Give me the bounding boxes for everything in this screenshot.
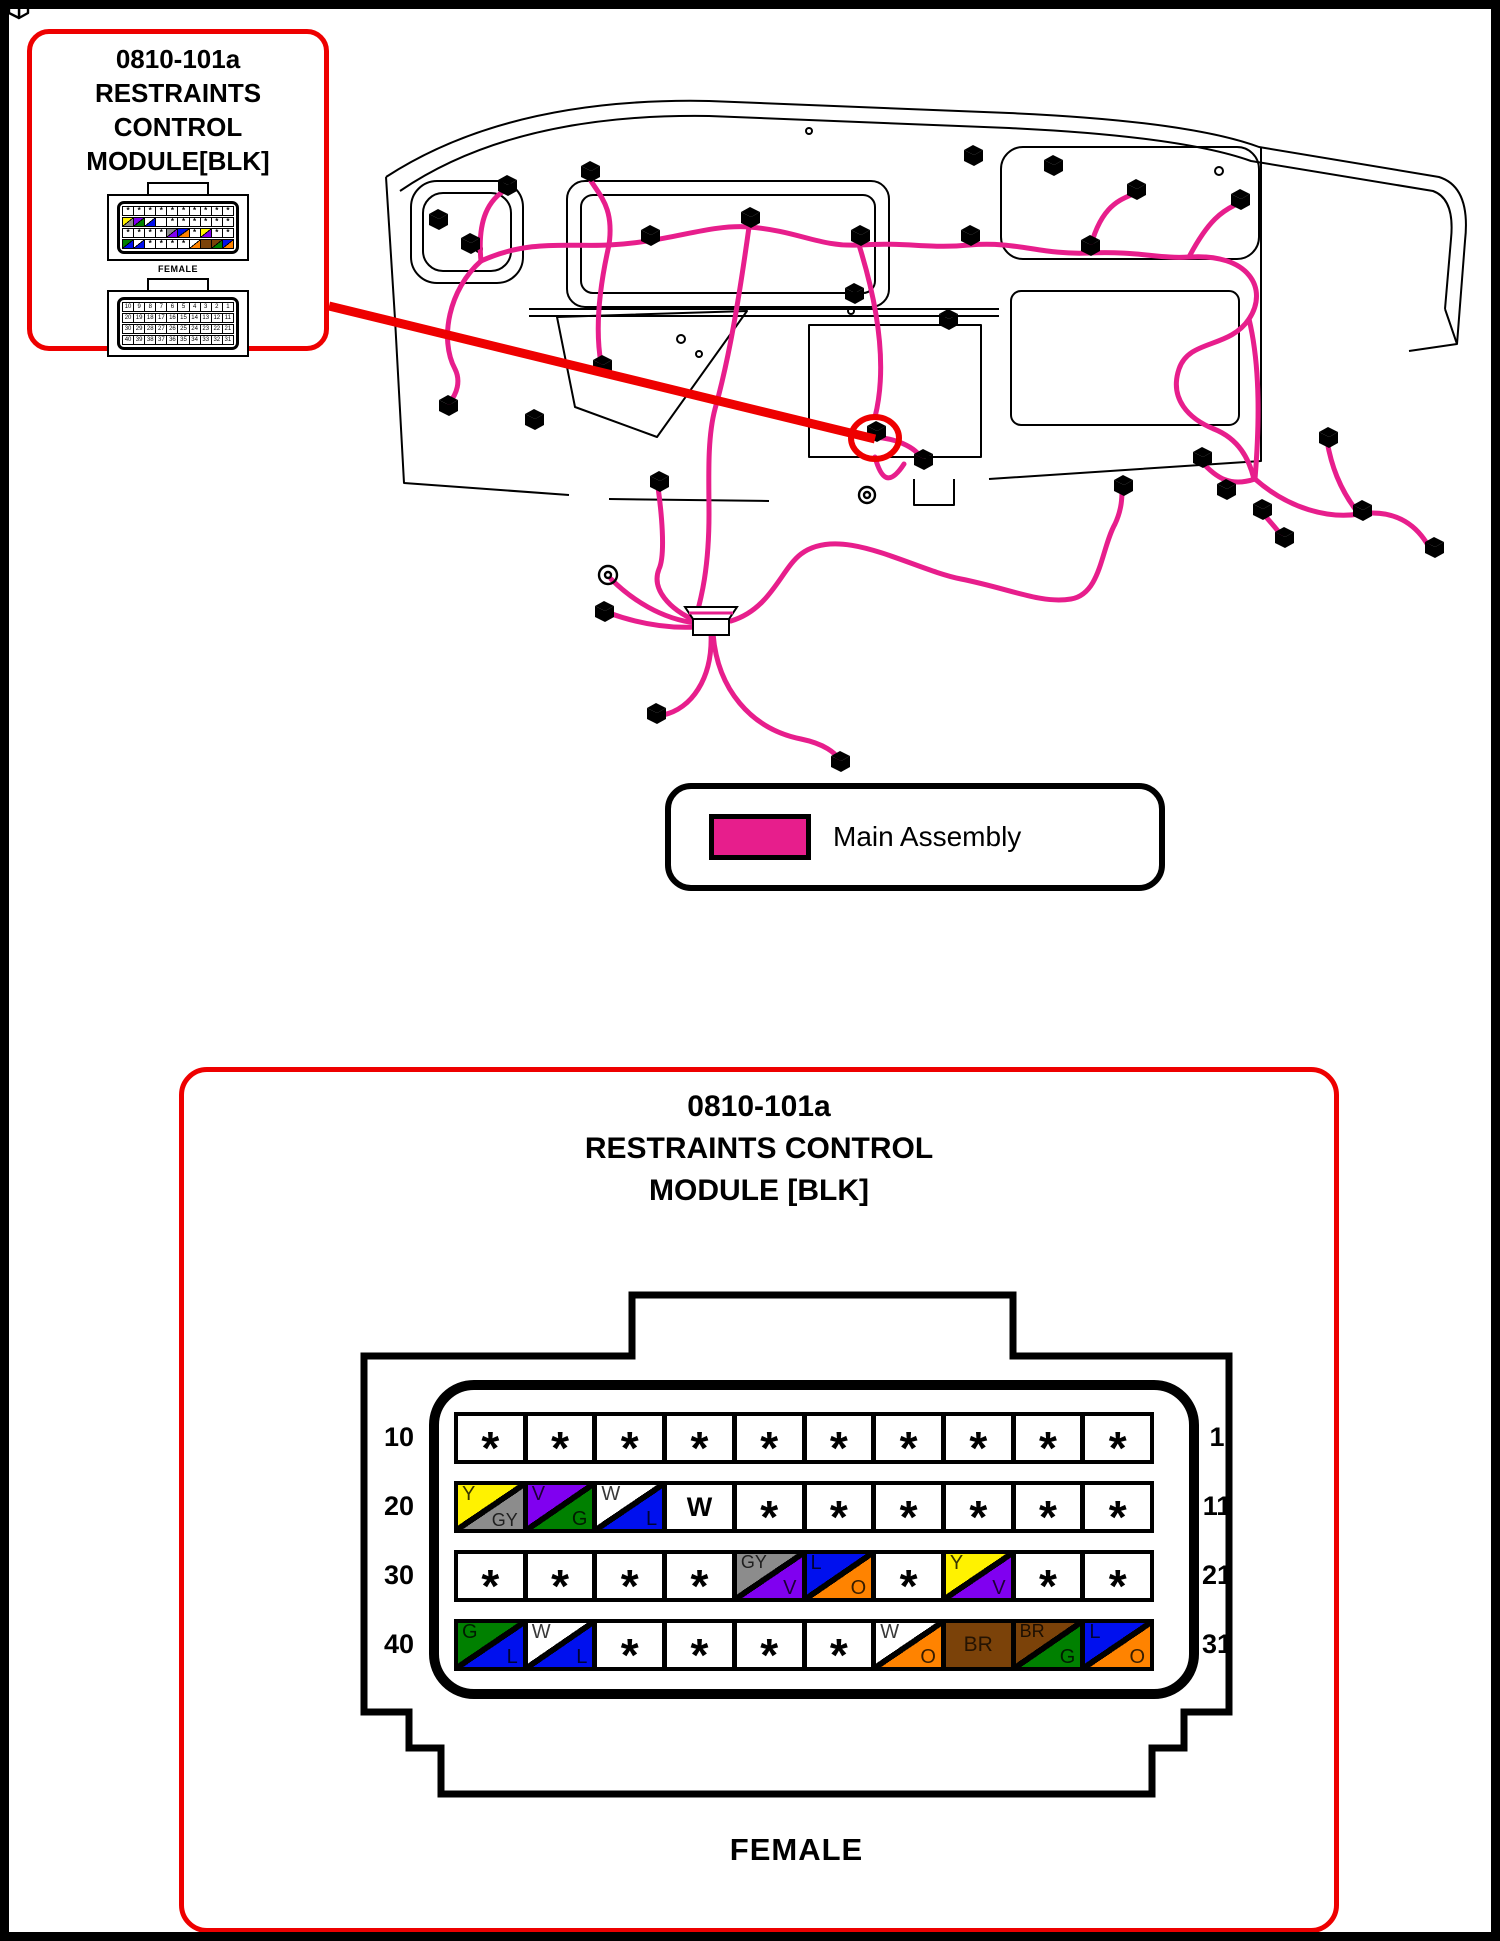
connector-thumb-tab [147,182,209,194]
mini-pin: * [190,229,200,237]
harness-connector-cubes [429,145,1444,772]
pin-unused: * [667,1623,732,1667]
mini-pin: * [134,207,144,215]
pin-unused: * [597,1416,662,1460]
mini-pin-number: 39 [134,336,144,344]
connector-gender-label: FEMALE [364,1832,1229,1868]
mini-pin [123,240,133,248]
callout-title-line: 0810-101a [32,42,324,76]
mini-pin-number: 7 [156,303,166,311]
mini-pin: * [190,218,200,226]
pin-unused: * [737,1485,802,1529]
connector-callout-box: 0810-101a RESTRAINTS CONTROL MODULE[BLK]… [27,29,329,351]
mini-pin-number: 17 [156,314,166,322]
pin-unused: * [876,1485,941,1529]
mini-pin-number: 11 [223,314,233,322]
pin-row-label: 21 [1186,1560,1248,1591]
pin-row-label: 1 [1186,1422,1248,1453]
callout-leader-line [329,306,875,439]
callout-title-line: RESTRAINTS [32,76,324,110]
mini-pin-number: 38 [145,336,155,344]
pin-unused: * [667,1554,732,1598]
connector-thumb-tab [147,278,209,290]
pin-unused: * [667,1416,732,1460]
legend-label: Main Assembly [833,821,1021,853]
pin-unused: * [807,1623,872,1667]
mini-pin: * [223,207,233,215]
module-pinout-box: 0810-101a RESTRAINTS CONTROL MODULE [BLK… [179,1067,1339,1933]
pin-unused: * [597,1623,662,1667]
highlight-circle [851,417,899,459]
mini-pin: * [145,229,155,237]
pin-row-label: 11 [1186,1491,1248,1522]
mini-pin: * [201,207,211,215]
mini-pin: * [212,207,222,215]
mini-pin-number: 13 [201,314,211,322]
mini-pin-number: 35 [178,336,188,344]
mini-pin-number: 25 [178,325,188,333]
mini-pin-number: 20 [123,314,133,322]
mini-pin [123,218,133,226]
mini-pin-number: 29 [134,325,144,333]
pin-unused: * [807,1416,872,1460]
mini-pin-number: 10 [123,303,133,311]
pin-wire-L-O: LO [1085,1623,1150,1667]
pin-unused: * [1085,1485,1150,1529]
mini-pin: * [145,207,155,215]
mini-pin-number: 21 [223,325,233,333]
mini-pin-number: 8 [145,303,155,311]
mini-pin: * [178,218,188,226]
mini-pin-number: 18 [145,314,155,322]
mini-pin-number: 33 [201,336,211,344]
mini-pin-number: 37 [156,336,166,344]
mini-pin-number: 27 [156,325,166,333]
pin-wire-Y-V: YV [946,1554,1011,1598]
callout-title: 0810-101a RESTRAINTS CONTROL MODULE[BLK] [32,42,324,178]
connector-thumb-pin-grid: 1098765432120191817161514131211302928272… [117,297,239,350]
mini-pin: * [156,207,166,215]
mini-pin [134,240,144,248]
speaker-clamp [685,607,737,635]
pin-unused: * [1085,1416,1150,1460]
pin-wire-V-G: VG [528,1485,593,1529]
mini-pin: * [156,240,166,248]
pin-row: GLWL****WOBRBRGLO [454,1619,1154,1671]
pin-row-label: 20 [368,1491,430,1522]
mini-pin [201,240,211,248]
connector-thumb-pin-grid: *************************** [117,201,239,254]
mini-pin [212,240,222,248]
pin-row: ********** [454,1412,1154,1464]
pin-unused: * [737,1623,802,1667]
pin-wire-W-L: WL [597,1485,662,1529]
pin-unused: * [807,1485,872,1529]
pin-row-label: 10 [368,1422,430,1453]
mini-pin [167,229,177,237]
mini-pin: * [167,218,177,226]
pin-wire-W: W [667,1485,732,1529]
mini-pin-number: 23 [201,325,211,333]
pin-unused: * [876,1416,941,1460]
pinout-grid: **********YGYVGWLW**********GYVLO*YV**GL… [454,1412,1154,1688]
pin-unused: * [1016,1554,1081,1598]
pin-unused: * [458,1416,523,1460]
mini-pin-number: 40 [123,336,133,344]
mini-pin-number: 14 [190,314,200,322]
mini-pin-number: 3 [201,303,211,311]
mini-pin: * [178,207,188,215]
mini-pin: * [134,229,144,237]
mini-pin-number: 22 [212,325,222,333]
mini-pin-number: 6 [167,303,177,311]
mini-pin: * [145,240,155,248]
pin-wire-Y-GY: YGY [458,1485,523,1529]
mini-pin: * [190,207,200,215]
mini-pin-number: 28 [145,325,155,333]
pin-unused: * [458,1554,523,1598]
mini-pin [223,240,233,248]
pin-row: YGYVGWLW****** [454,1481,1154,1533]
pin-row-label: 40 [368,1629,430,1660]
wiring-diagram-page: 0810-101a RESTRAINTS CONTROL MODULE[BLK]… [0,0,1500,1941]
connector-thumbnail-female: *************************** FEMALE [107,182,249,274]
mini-pin: * [201,218,211,226]
mini-pin-number: 4 [190,303,200,311]
mini-pin: * [167,240,177,248]
pin-unused: * [1016,1485,1081,1529]
mini-pin: * [156,229,166,237]
mini-pin: * [178,240,188,248]
mini-pin-number: 5 [178,303,188,311]
pin-unused: * [946,1485,1011,1529]
mini-pin-number: 32 [212,336,222,344]
pin-wire-W-L: WL [528,1623,593,1667]
pin-unused: * [528,1416,593,1460]
ring-connectors [599,487,875,584]
mini-pin [145,218,155,226]
mini-pin-number: 16 [167,314,177,322]
callout-title-line: MODULE[BLK] [32,144,324,178]
mini-pin [134,218,144,226]
pin-row-label: 31 [1186,1629,1248,1660]
mini-pin: * [223,229,233,237]
mini-pin-number: 15 [178,314,188,322]
mini-pin: * [212,229,222,237]
pin-wire-L-O: LO [807,1554,872,1598]
mini-pin: * [167,207,177,215]
pin-wire-BR-G: BRG [1016,1623,1081,1667]
connector-thumbnail-rear: 1098765432120191817161514131211302928272… [107,278,249,357]
harness-wires [447,181,1429,759]
mini-pin: * [123,229,133,237]
main-assembly-color-swatch [709,814,811,860]
pin-row-label: 30 [368,1560,430,1591]
dashboard-outline [386,101,1466,505]
pin-wire-W-O: WO [876,1623,941,1667]
pin-unused: * [737,1416,802,1460]
mini-pin-number: 31 [223,336,233,344]
mini-pin: * [123,207,133,215]
mini-pin-number: 2 [212,303,222,311]
pin-unused: * [1085,1554,1150,1598]
callout-title-line: CONTROL [32,110,324,144]
mini-pin-number: 24 [190,325,200,333]
mini-pin-number: 9 [134,303,144,311]
mini-pin [156,218,166,226]
mini-pin-number: 34 [190,336,200,344]
pin-unused: * [876,1554,941,1598]
pin-wire-BR: BR [946,1623,1011,1667]
pin-wire-GY-V: GYV [737,1554,802,1598]
pin-wire-G-L: GL [458,1623,523,1667]
pin-unused: * [1016,1416,1081,1460]
pin-row: ****GYVLO*YV** [454,1550,1154,1602]
mini-pin-number: 26 [167,325,177,333]
mini-pin-number: 30 [123,325,133,333]
mini-pin: * [223,218,233,226]
mini-pin-number: 19 [134,314,144,322]
pin-unused: * [597,1554,662,1598]
legend-box: Main Assembly [665,783,1165,891]
pin-unused: * [946,1416,1011,1460]
mini-pin: * [212,218,222,226]
mini-pin-number: 1 [223,303,233,311]
connector-thumb-caption: FEMALE [107,264,249,274]
harness-connectors [9,9,28,18]
mini-pin-number: 36 [167,336,177,344]
pin-unused: * [528,1554,593,1598]
mini-pin [201,229,211,237]
mini-pin-number: 12 [212,314,222,322]
mini-pin [178,229,188,237]
mini-pin [190,240,200,248]
